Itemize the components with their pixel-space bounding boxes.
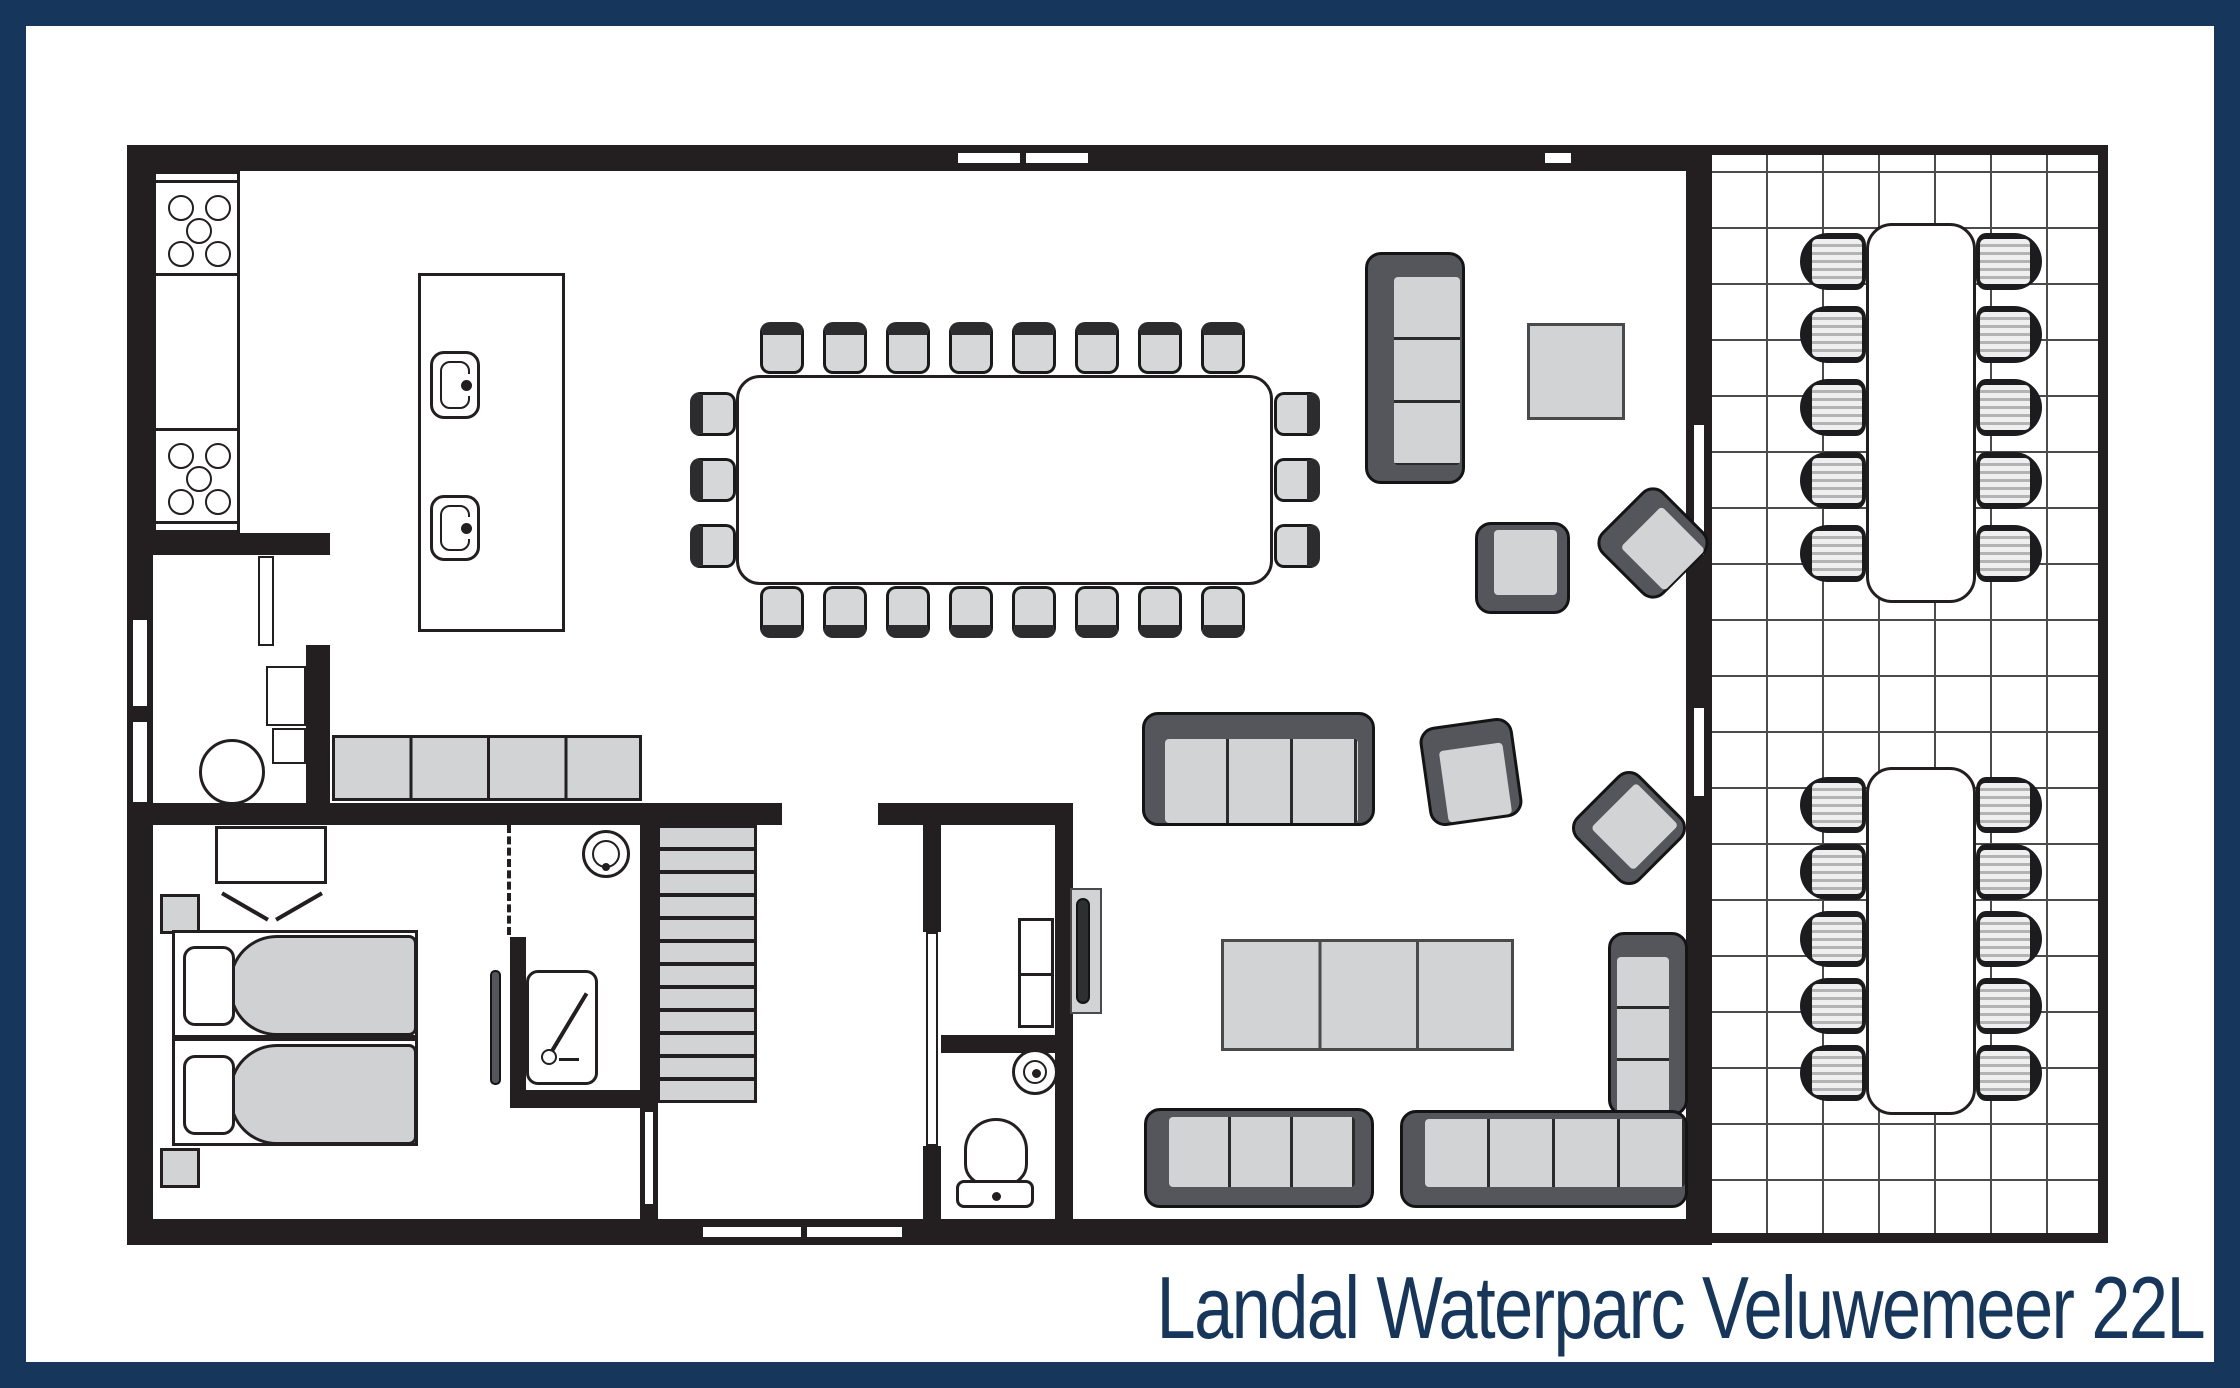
- burner: [186, 218, 212, 244]
- burner: [205, 443, 231, 469]
- terrace-chair: [1976, 978, 2042, 1034]
- dining-chair: [949, 586, 993, 638]
- window-left-2: [131, 722, 149, 802]
- dining-chair: [949, 322, 993, 374]
- burner: [205, 195, 231, 221]
- terrace-chair: [1800, 777, 1866, 833]
- floorplan-title: Landal Waterparc Veluwemeer 22L: [1001, 1256, 2204, 1360]
- terrace-chair-seat: [1812, 1051, 1862, 1095]
- wall-storage-right-upper: [306, 533, 330, 555]
- terrace-chair: [1976, 1045, 2042, 1101]
- bed-pillow: [183, 946, 235, 1026]
- terrace-chair-seat: [1812, 917, 1862, 961]
- burner: [186, 466, 212, 492]
- terrace-door-lower: [1692, 708, 1706, 796]
- window-top-3: [1545, 151, 1571, 165]
- terrace-chair-seat: [1980, 1051, 2030, 1095]
- dining-chair: [1274, 524, 1320, 568]
- coffee-table: [1221, 939, 1514, 1051]
- terrace-chair-seat: [1812, 850, 1862, 894]
- dining-chair: [1012, 322, 1056, 374]
- kitchen-sideboard: [332, 735, 642, 801]
- storage-shelf-2: [272, 728, 306, 764]
- terrace-chair: [1800, 911, 1866, 967]
- terrace-chair-seat: [1812, 312, 1862, 357]
- wall-bathroom-bottom: [510, 1090, 658, 1108]
- wc-cupboard: [1018, 918, 1054, 1028]
- terrace-chair-seat: [1980, 783, 2030, 827]
- wall-exterior-bottom: [127, 1219, 1712, 1245]
- nightstand: [160, 1148, 200, 1188]
- bed-pillow: [183, 1055, 235, 1135]
- terrace-chair: [1800, 844, 1866, 900]
- terrace-chair-seat: [1812, 531, 1862, 576]
- shower: [526, 970, 598, 1085]
- wall-terrace-top: [1712, 145, 2108, 155]
- wall-exterior-right: [1686, 145, 1712, 1245]
- basin-dot: [602, 863, 610, 871]
- armchair: [1475, 522, 1570, 614]
- doorway-dashed-line: [507, 825, 511, 935]
- sofa-seats: [1394, 277, 1460, 465]
- wall-hall-top-east: [878, 803, 1073, 825]
- wall-bedroom-top: [153, 803, 330, 825]
- wall-storage-top: [153, 533, 330, 555]
- dining-chair: [823, 586, 867, 638]
- corner-sofa-vertical: [1608, 932, 1688, 1116]
- door-slit-stairs-wall: [645, 1112, 653, 1204]
- dining-chair: [1075, 586, 1119, 638]
- dining-chair: [886, 586, 930, 638]
- storage-shelf-1: [266, 666, 306, 726]
- armchair: [1417, 716, 1524, 828]
- kitchen-island: [418, 273, 565, 632]
- terrace-table: [1866, 767, 1976, 1115]
- dining-chair: [690, 458, 736, 502]
- sofa-seats: [1617, 957, 1669, 1113]
- terrace-chair: [1976, 777, 2042, 833]
- wall-wc-left-upper: [923, 803, 941, 932]
- burner: [205, 241, 231, 267]
- wall-exterior-top: [127, 145, 1712, 171]
- bathroom-basin: [582, 830, 630, 878]
- storage-door-leaf: [258, 556, 274, 646]
- sofa-seats: [1425, 1119, 1685, 1187]
- window-left-1: [131, 620, 149, 706]
- entrance-door-2: [807, 1225, 902, 1239]
- terrace-chair-seat: [1980, 312, 2030, 357]
- bed-duvet: [229, 1044, 417, 1145]
- toilet-tank: [956, 1180, 1034, 1208]
- armchair-seat: [1494, 530, 1557, 595]
- wall-storage-right-lower: [306, 645, 330, 805]
- dining-chair: [1012, 586, 1056, 638]
- island-sink-1: [430, 351, 480, 419]
- dining-chair: [1201, 586, 1245, 638]
- wall-terrace-bottom: [1712, 1233, 2108, 1243]
- wall-terrace-right: [2098, 145, 2108, 1243]
- dining-table: [736, 375, 1273, 585]
- stairs: [657, 825, 757, 1103]
- toilet-dot: [992, 1192, 1001, 1201]
- dining-chair: [1274, 458, 1320, 502]
- terrace-chair-seat: [1812, 239, 1862, 284]
- dining-chair: [690, 524, 736, 568]
- terrace-chair: [1976, 452, 2042, 509]
- terrace-chair: [1800, 1045, 1866, 1101]
- sofa-seats: [1165, 739, 1358, 823]
- sink-faucet-dot: [461, 523, 472, 534]
- dining-chair: [690, 392, 736, 436]
- wall-wc-left-lower: [923, 1146, 941, 1219]
- terrace-chair: [1800, 233, 1866, 290]
- terrace-chair-seat: [1812, 385, 1862, 430]
- sofa-three-seat-south: [1144, 1108, 1374, 1208]
- terrace-chair-seat: [1980, 385, 2030, 430]
- terrace-chair: [1800, 452, 1866, 509]
- wc-basin: [1012, 1049, 1058, 1095]
- floorplan-canvas: Landal Waterparc Veluwemeer 22L: [0, 0, 2240, 1388]
- burner: [168, 489, 194, 515]
- burner: [168, 241, 194, 267]
- terrace-chair: [1800, 978, 1866, 1034]
- terrace-chair-seat: [1980, 984, 2030, 1028]
- sofa-three-seat: [1142, 712, 1375, 826]
- bed-duvet: [229, 935, 417, 1036]
- terrace-chair: [1976, 233, 2042, 290]
- shower-line: [559, 1058, 579, 1061]
- shower-drain: [541, 1049, 557, 1065]
- terrace-chair-seat: [1980, 239, 2030, 284]
- sofa-seats: [1169, 1117, 1355, 1187]
- terrace-chair: [1976, 911, 2042, 967]
- terrace-chair: [1976, 379, 2042, 436]
- bed-single: [172, 1038, 418, 1146]
- armchair-seat: [1439, 742, 1512, 822]
- side-table-square: [1527, 323, 1625, 420]
- window-top-1: [958, 151, 1020, 165]
- terrace-chair-seat: [1980, 458, 2030, 503]
- window-top-2: [1026, 151, 1088, 165]
- terrace-chair-seat: [1812, 783, 1862, 827]
- nightstand: [160, 894, 200, 934]
- dining-chair: [1274, 392, 1320, 436]
- tv-screen: [1076, 898, 1090, 1004]
- terrace-chair: [1976, 306, 2042, 363]
- island-sink-2: [430, 495, 480, 561]
- terrace-chair-seat: [1980, 917, 2030, 961]
- wall-bedroom-right: [510, 937, 526, 1092]
- basin-dot: [1032, 1069, 1041, 1078]
- wardrobe: [215, 826, 327, 884]
- dining-chair: [886, 322, 930, 374]
- dining-chair: [823, 322, 867, 374]
- corner-sofa-horizontal: [1400, 1110, 1688, 1208]
- terrace-chair: [1800, 379, 1866, 436]
- burner: [205, 489, 231, 515]
- wc-door-leaf: [926, 932, 938, 1146]
- sofa-three-seat-vertical: [1365, 252, 1465, 484]
- dining-chair: [1138, 322, 1182, 374]
- terrace-chair: [1800, 306, 1866, 363]
- dining-chair: [1138, 586, 1182, 638]
- terrace-chair: [1976, 525, 2042, 582]
- terrace-chair-seat: [1980, 531, 2030, 576]
- terrace-chair-seat: [1812, 984, 1862, 1028]
- dining-chair: [1075, 322, 1119, 374]
- toilet-bowl: [964, 1118, 1028, 1186]
- terrace-chair: [1976, 844, 2042, 900]
- shower-screen: [490, 970, 501, 1085]
- terrace-chair: [1800, 525, 1866, 582]
- terrace-chair-seat: [1980, 850, 2030, 894]
- terrace-table: [1866, 223, 1976, 603]
- burner: [168, 443, 194, 469]
- dining-chair: [760, 586, 804, 638]
- hob-upper: [153, 180, 240, 276]
- dining-chair: [1201, 322, 1245, 374]
- wall-hall-top-west: [306, 803, 782, 825]
- burner: [168, 195, 194, 221]
- terrace-chair-seat: [1812, 458, 1862, 503]
- hob-lower: [153, 428, 240, 524]
- washing-machine: [199, 739, 265, 805]
- entrance-door-1: [703, 1225, 801, 1239]
- cupboard-divider: [1021, 973, 1051, 976]
- sink-faucet-dot: [461, 380, 472, 391]
- bed-single: [172, 930, 418, 1038]
- dining-chair: [760, 322, 804, 374]
